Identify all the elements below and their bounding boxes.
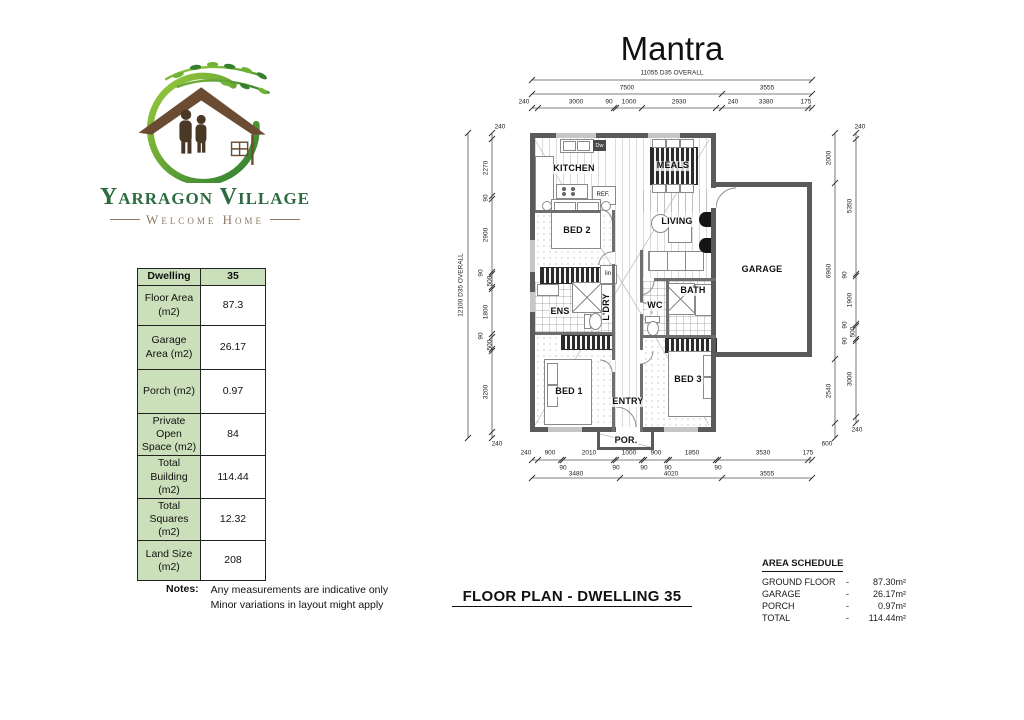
room-label-bath: BATH <box>679 286 706 296</box>
dining-chair <box>652 184 666 193</box>
dim-label: 2540 <box>826 384 833 398</box>
interior-wall <box>666 281 669 335</box>
dim-label: 600 <box>822 441 833 448</box>
dim-label: 2010 <box>582 450 596 457</box>
dim-label: 240 <box>492 441 503 448</box>
dim-label: 500 <box>487 276 494 287</box>
room-label-living: LIVING <box>660 217 693 227</box>
interior-wall <box>612 210 615 252</box>
room-label-meals: MEALS <box>656 161 691 171</box>
sink-bowl <box>577 141 590 151</box>
dim-label: 900 <box>651 450 662 457</box>
dim-label: 500 <box>487 340 494 351</box>
room-label-laundry: L'DRY <box>602 292 612 321</box>
dim-label: 11055 D35 OVERALL <box>640 70 703 77</box>
dim-label: 2270 <box>483 161 490 175</box>
dim-label: 90 <box>640 465 647 472</box>
dim-label: 90 <box>478 269 485 276</box>
room-label-wc: WC <box>646 301 663 311</box>
dim-label: 1000 <box>622 450 636 457</box>
dishwasher-label: Dw <box>596 143 604 149</box>
dim-label: 90 <box>478 332 485 339</box>
garage-wall <box>711 352 812 357</box>
room-label-kitchen: KITCHEN <box>552 164 595 174</box>
dishwasher-box: Dw <box>593 140 606 151</box>
garage-door-opening <box>711 188 716 208</box>
window <box>664 427 698 432</box>
window <box>530 292 535 312</box>
fridge-label: REF. <box>596 192 609 198</box>
dim-label: 1900 <box>847 293 854 307</box>
dim-label: 3480 <box>569 471 583 478</box>
dim-label: 90 <box>559 465 566 472</box>
dim-label: 6960 <box>826 264 833 278</box>
dim-label: 3000 <box>847 372 854 386</box>
interior-wall <box>640 335 716 338</box>
room-label-bed3: BED 3 <box>673 375 703 385</box>
plan-linework <box>0 0 1024 720</box>
dim-label: 90 <box>605 99 612 106</box>
dim-label: 3200 <box>483 385 490 399</box>
ens-shower <box>572 282 602 313</box>
dim-label: 240 <box>728 99 739 106</box>
ens-vanity <box>537 284 559 296</box>
robe-bed1 <box>561 335 615 350</box>
dining-chair <box>652 139 666 148</box>
dim-label: 1000 <box>622 99 636 106</box>
dim-label: 240 <box>521 450 532 457</box>
wall <box>530 133 535 432</box>
room-label-bed2: BED 2 <box>562 226 592 236</box>
wall <box>711 133 716 432</box>
dim-label: 12100 D35 OVERALL <box>458 253 465 317</box>
window <box>530 240 535 272</box>
garage-wall <box>807 182 812 357</box>
dim-label: 2000 <box>826 151 833 165</box>
room-label-garage: GARAGE <box>741 265 784 275</box>
ens-toilet <box>589 313 602 330</box>
dim-label: 240 <box>495 124 506 131</box>
dining-chair <box>680 139 694 148</box>
interior-wall <box>612 264 615 360</box>
dim-label: 5350 <box>847 199 854 213</box>
dim-label: 90 <box>842 271 849 278</box>
bedside-lamp <box>601 201 611 211</box>
room-label-entry: ENTRY <box>611 397 644 407</box>
dim-label: 900 <box>545 450 556 457</box>
dim-label: 4020 <box>664 471 678 478</box>
wc-toilet <box>647 321 659 336</box>
room-label-bed1: BED 1 <box>554 387 584 397</box>
dim-label: 175 <box>803 450 814 457</box>
floor-plan-page: Yarragon Village Welcome Home Dwelling 3… <box>0 0 1024 720</box>
sofa <box>648 251 704 271</box>
dim-label: 1800 <box>483 305 490 319</box>
dim-label: 175 <box>801 99 812 106</box>
garage-wall <box>711 182 812 187</box>
room-label-porch: POR. <box>614 436 639 446</box>
dining-chair <box>666 184 680 193</box>
interior-wall <box>535 210 601 213</box>
dining-chair <box>666 139 680 148</box>
cooktop <box>556 184 588 199</box>
room-label-ens: ENS <box>549 307 570 317</box>
interior-wall <box>654 278 716 281</box>
dim-label: 90 <box>842 321 849 328</box>
dim-label: 240 <box>852 427 863 434</box>
interior-wall <box>640 250 643 302</box>
interior-wall <box>535 332 612 335</box>
pillow <box>547 363 558 385</box>
dim-label: 3555 <box>760 471 774 478</box>
dim-label: 240 <box>519 99 530 106</box>
dim-label: 240 <box>855 124 866 131</box>
dim-label: 500 <box>850 327 857 338</box>
dim-label: 3380 <box>759 99 773 106</box>
dim-label: 2900 <box>483 228 490 242</box>
dim-label: 90 <box>842 337 849 344</box>
porch-wall <box>651 432 654 449</box>
dim-label: 3555 <box>760 85 774 92</box>
dim-label: 7500 <box>620 85 634 92</box>
dim-label: 2930 <box>672 99 686 106</box>
dim-label: 90 <box>612 465 619 472</box>
window <box>556 133 596 138</box>
dim-label: 3530 <box>756 450 770 457</box>
dim-label: 3000 <box>569 99 583 106</box>
sink-bowl <box>563 141 576 151</box>
dim-label: 90 <box>714 465 721 472</box>
window <box>548 427 582 432</box>
dining-chair <box>680 184 694 193</box>
linen-label: lin <box>605 271 611 277</box>
dim-label: 1850 <box>685 450 699 457</box>
interior-wall <box>640 314 643 350</box>
dim-label: 90 <box>483 194 490 201</box>
window <box>648 133 680 138</box>
